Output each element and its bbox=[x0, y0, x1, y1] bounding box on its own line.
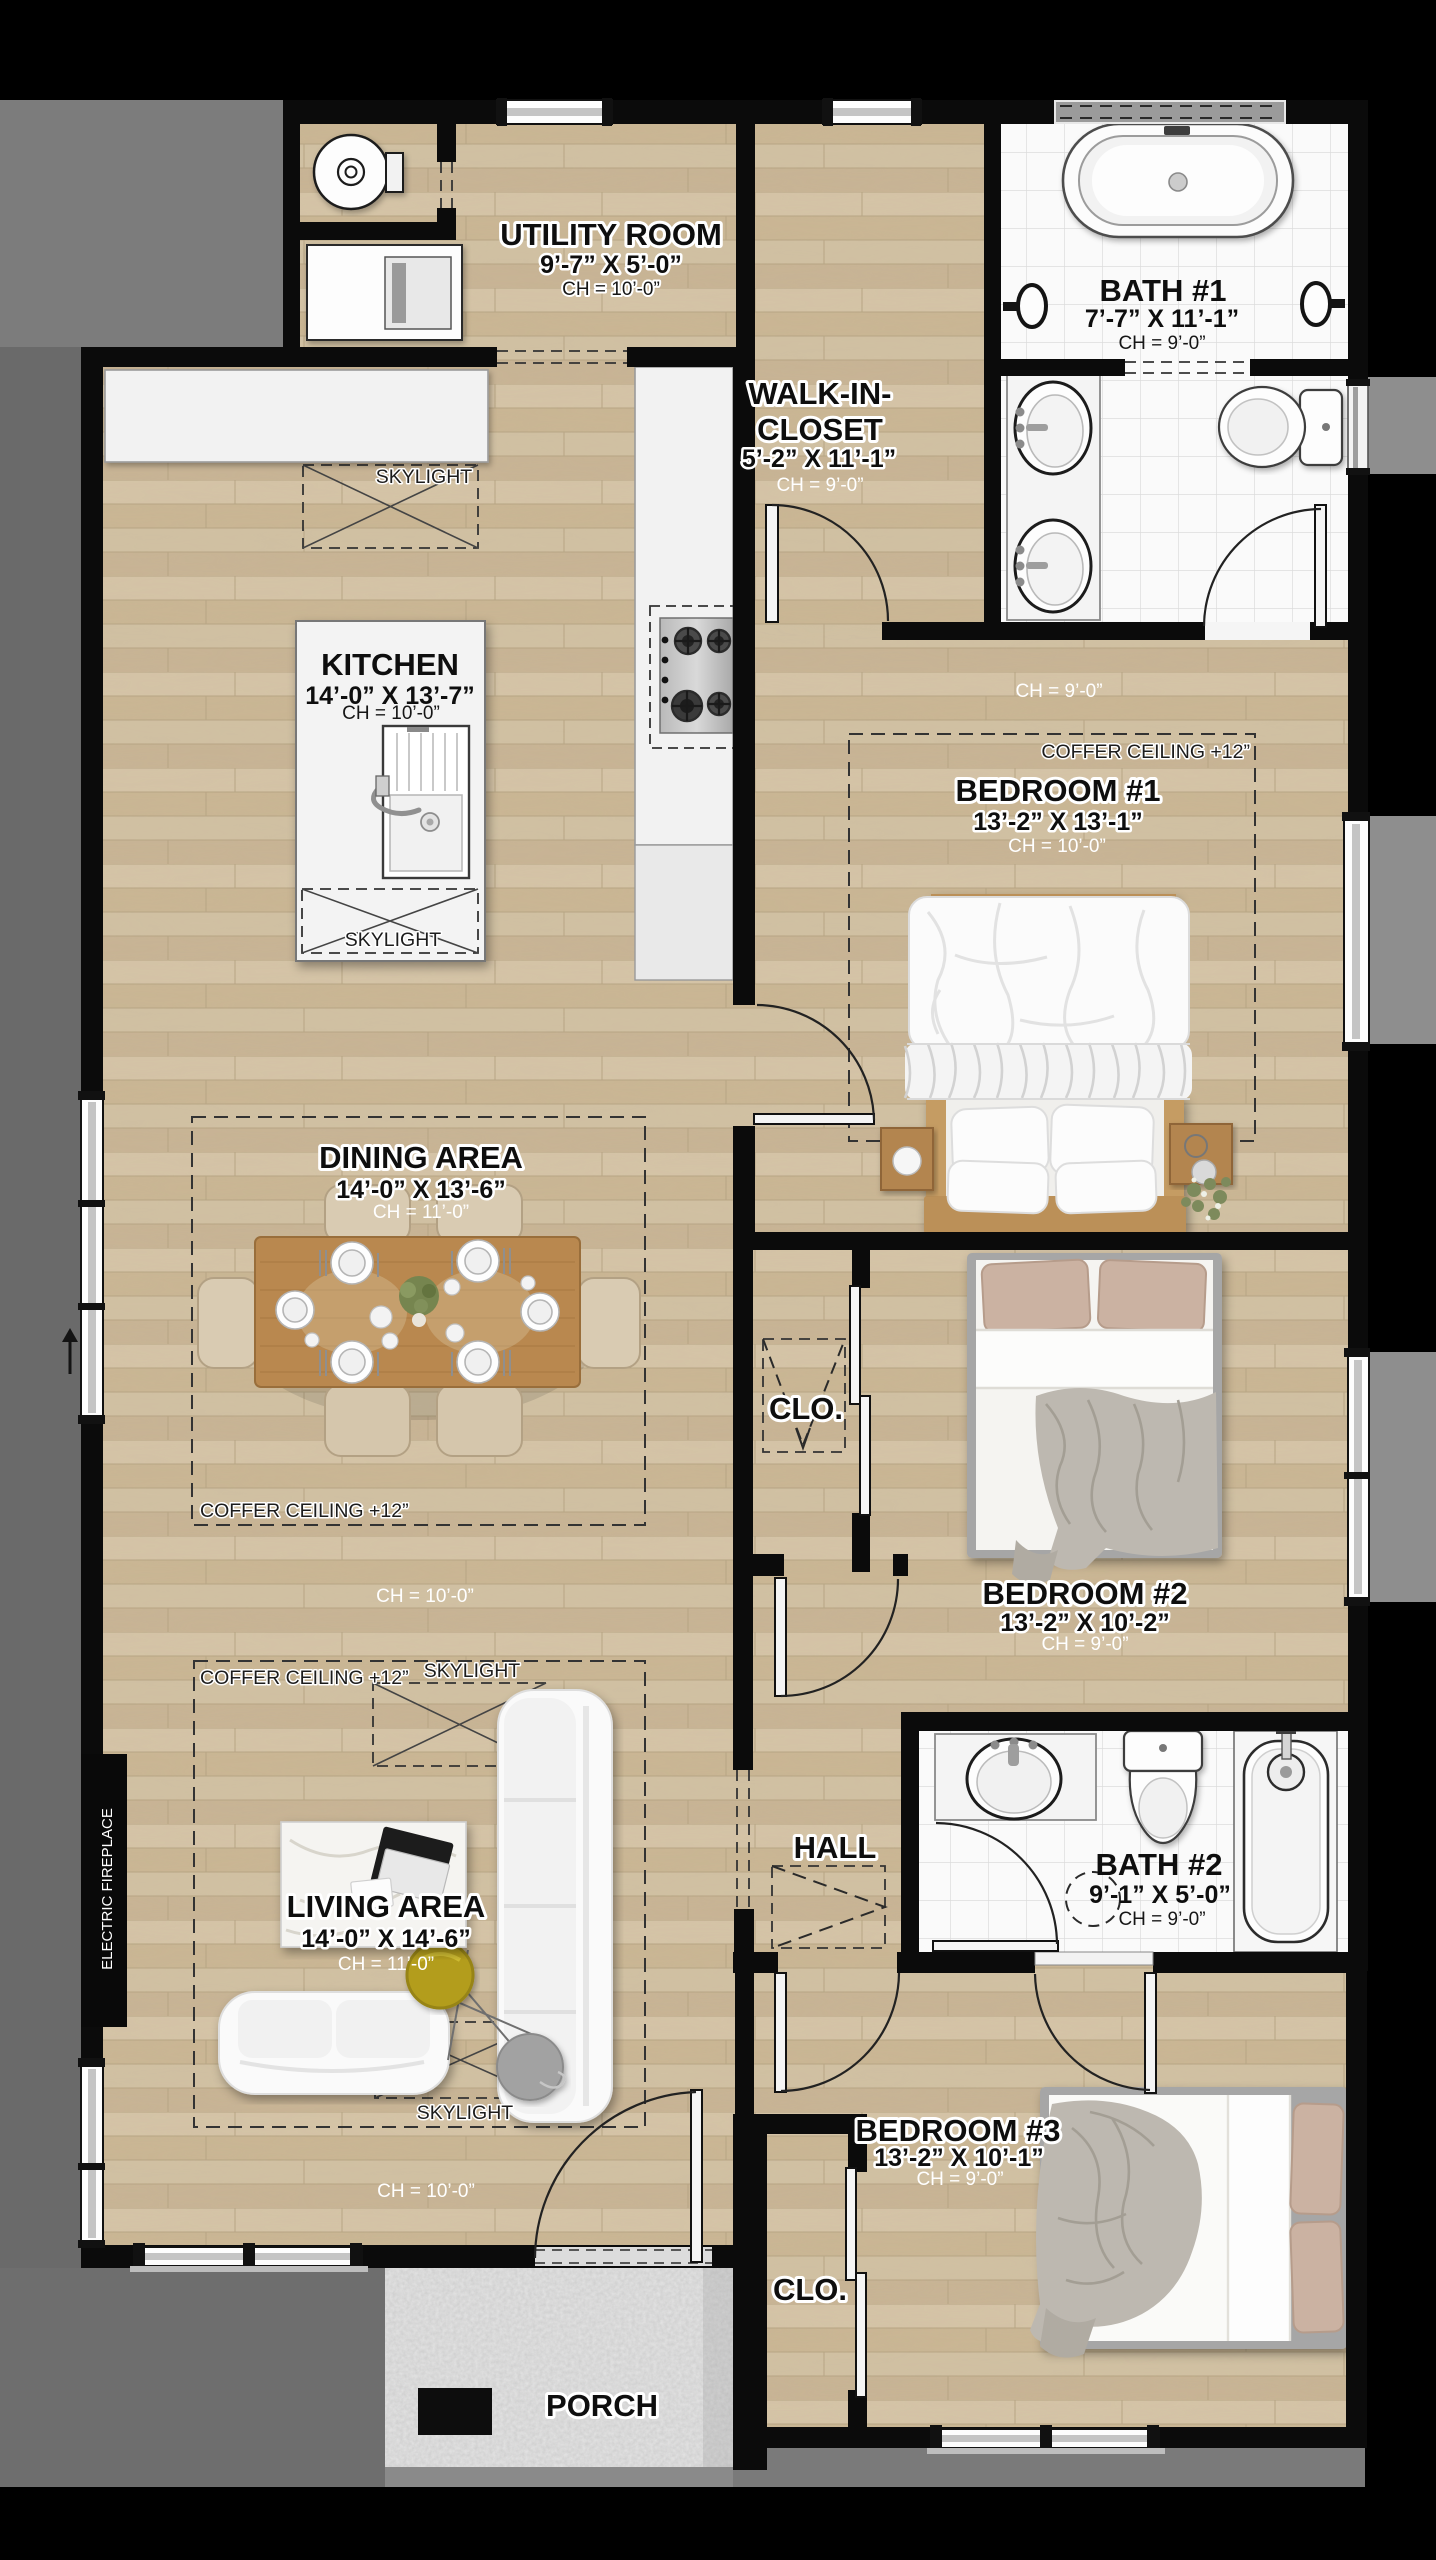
svg-text:SKYLIGHT: SKYLIGHT bbox=[417, 2102, 514, 2124]
svg-text:SKYLIGHT: SKYLIGHT bbox=[376, 466, 473, 488]
svg-text:14’-0” X 13’-6”: 14’-0” X 13’-6” bbox=[336, 1176, 506, 1204]
svg-text:CH = 9’-0”: CH = 9’-0” bbox=[1118, 1909, 1205, 1930]
svg-text:13’-2” X 10’-1”: 13’-2” X 10’-1” bbox=[874, 2144, 1044, 2172]
svg-text:BEDROOM #3: BEDROOM #3 bbox=[856, 2113, 1061, 2148]
svg-text:9’-1” X 5’-0”: 9’-1” X 5’-0” bbox=[1089, 1881, 1231, 1909]
svg-text:7’-7” X 11’-1”: 7’-7” X 11’-1” bbox=[1085, 305, 1239, 333]
svg-text:BATH #1: BATH #1 bbox=[1100, 273, 1227, 308]
svg-text:COFFER CEILING +12”: COFFER CEILING +12” bbox=[200, 1500, 409, 1522]
svg-text:HALL: HALL bbox=[794, 1830, 877, 1865]
svg-text:CH = 9’-0”: CH = 9’-0” bbox=[1015, 681, 1102, 702]
svg-text:BATH #2: BATH #2 bbox=[1096, 1847, 1223, 1882]
svg-text:CH = 11’-0”: CH = 11’-0” bbox=[373, 1202, 469, 1223]
svg-text:CH = 10’-0”: CH = 10’-0” bbox=[562, 279, 660, 300]
svg-text:CH = 10’-0”: CH = 10’-0” bbox=[376, 1586, 474, 1607]
svg-text:CH = 10’-0”: CH = 10’-0” bbox=[377, 2181, 475, 2202]
svg-text:SKYLIGHT: SKYLIGHT bbox=[424, 1660, 521, 1682]
svg-text:BEDROOM #1: BEDROOM #1 bbox=[956, 773, 1161, 808]
svg-text:CH = 9’-0”: CH = 9’-0” bbox=[776, 475, 863, 496]
svg-text:5’-2” X 11’-1”: 5’-2” X 11’-1” bbox=[742, 445, 896, 473]
svg-text:CH = 10’-0”: CH = 10’-0” bbox=[342, 703, 440, 724]
svg-text:WALK-IN-: WALK-IN- bbox=[749, 376, 892, 411]
svg-text:BEDROOM #2: BEDROOM #2 bbox=[983, 1576, 1188, 1611]
svg-text:CLOSET: CLOSET bbox=[757, 412, 883, 447]
svg-text:13’-2” X 10’-2”: 13’-2” X 10’-2” bbox=[1000, 1609, 1170, 1637]
svg-text:CH = 11’-0”: CH = 11’-0” bbox=[338, 1954, 434, 1975]
svg-text:KITCHEN: KITCHEN bbox=[321, 647, 459, 682]
svg-text:SKYLIGHT: SKYLIGHT bbox=[345, 929, 442, 951]
svg-text:LIVING AREA: LIVING AREA bbox=[287, 1889, 486, 1924]
svg-text:CH = 10’-0”: CH = 10’-0” bbox=[1008, 836, 1106, 857]
svg-text:UTILITY ROOM: UTILITY ROOM bbox=[500, 217, 722, 252]
svg-text:CLO.: CLO. bbox=[773, 2272, 847, 2307]
svg-text:CLO.: CLO. bbox=[769, 1391, 843, 1426]
svg-text:CH = 9’-0”: CH = 9’-0” bbox=[916, 2169, 1003, 2190]
svg-text:CH = 9’-0”: CH = 9’-0” bbox=[1041, 1634, 1128, 1655]
svg-text:ELECTRIC FIREPLACE: ELECTRIC FIREPLACE bbox=[99, 1808, 116, 1970]
svg-text:DINING AREA: DINING AREA bbox=[319, 1140, 523, 1175]
svg-text:COFFER CEILING +12”: COFFER CEILING +12” bbox=[200, 1667, 409, 1689]
svg-text:COFFER CEILING +12”: COFFER CEILING +12” bbox=[1041, 741, 1250, 763]
svg-text:9’-7” X 5’-0”: 9’-7” X 5’-0” bbox=[540, 251, 682, 279]
svg-text:14’-0” X 14’-6”: 14’-0” X 14’-6” bbox=[301, 1925, 471, 1953]
svg-text:CH = 9’-0”: CH = 9’-0” bbox=[1118, 333, 1205, 354]
svg-text:13’-2” X 13’-1”: 13’-2” X 13’-1” bbox=[973, 808, 1143, 836]
svg-text:PORCH: PORCH bbox=[546, 2388, 658, 2423]
